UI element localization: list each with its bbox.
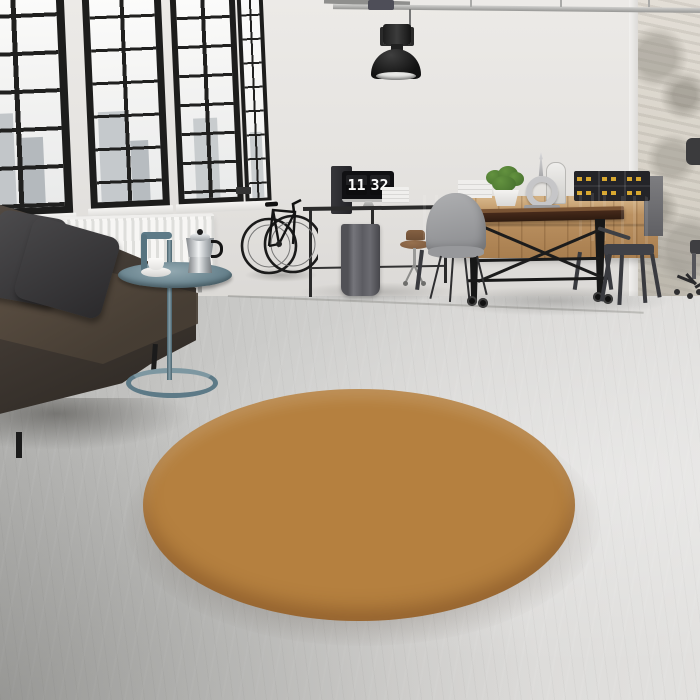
plant-leaves bbox=[492, 176, 516, 192]
office-chair-seat bbox=[690, 240, 700, 254]
rug-grid bbox=[143, 389, 575, 621]
stool-caster bbox=[421, 281, 426, 286]
pipe-hanger bbox=[560, 0, 562, 7]
draped-towel bbox=[341, 224, 380, 296]
window-1 bbox=[0, 0, 73, 218]
moka-pot-bottom bbox=[188, 256, 212, 273]
coffee-cup bbox=[148, 258, 164, 270]
window-panes bbox=[88, 0, 162, 202]
moka-pot-knob bbox=[197, 229, 203, 235]
window-panes bbox=[0, 0, 65, 210]
side-table-tray bbox=[118, 262, 232, 288]
wall-fixture bbox=[686, 138, 700, 165]
clock-hours: 11 bbox=[346, 175, 366, 195]
side-table-base-ring bbox=[126, 368, 218, 398]
window-panes bbox=[175, 0, 237, 199]
sofa-leg bbox=[16, 432, 22, 458]
pipe-hanger bbox=[470, 0, 472, 7]
side-table-post bbox=[167, 240, 172, 380]
office-chair-caster bbox=[696, 289, 700, 295]
office-chair-column bbox=[692, 253, 696, 279]
table-caster bbox=[603, 294, 613, 304]
stool-caster bbox=[403, 281, 408, 286]
pipe-fitting bbox=[368, 0, 394, 10]
pipe-hanger bbox=[648, 0, 650, 7]
window-3 bbox=[169, 0, 244, 205]
side-table-handle bbox=[141, 234, 147, 272]
round-patchwork-rug bbox=[143, 389, 575, 621]
bicycle bbox=[240, 176, 318, 282]
office-chair-caster bbox=[674, 289, 680, 295]
box-latches bbox=[577, 177, 647, 181]
paper-stack bbox=[382, 187, 409, 203]
pendant-lamp-top bbox=[383, 24, 411, 45]
metal-armchair-back bbox=[612, 196, 652, 246]
window-2 bbox=[81, 0, 170, 210]
silver-ring-ornament bbox=[526, 176, 558, 208]
office-chair-caster bbox=[687, 293, 693, 299]
table-caster bbox=[478, 298, 488, 308]
window-panes bbox=[241, 0, 268, 198]
pendant-lamp-rim bbox=[376, 72, 416, 80]
room-scene: 1132 bbox=[0, 0, 700, 700]
